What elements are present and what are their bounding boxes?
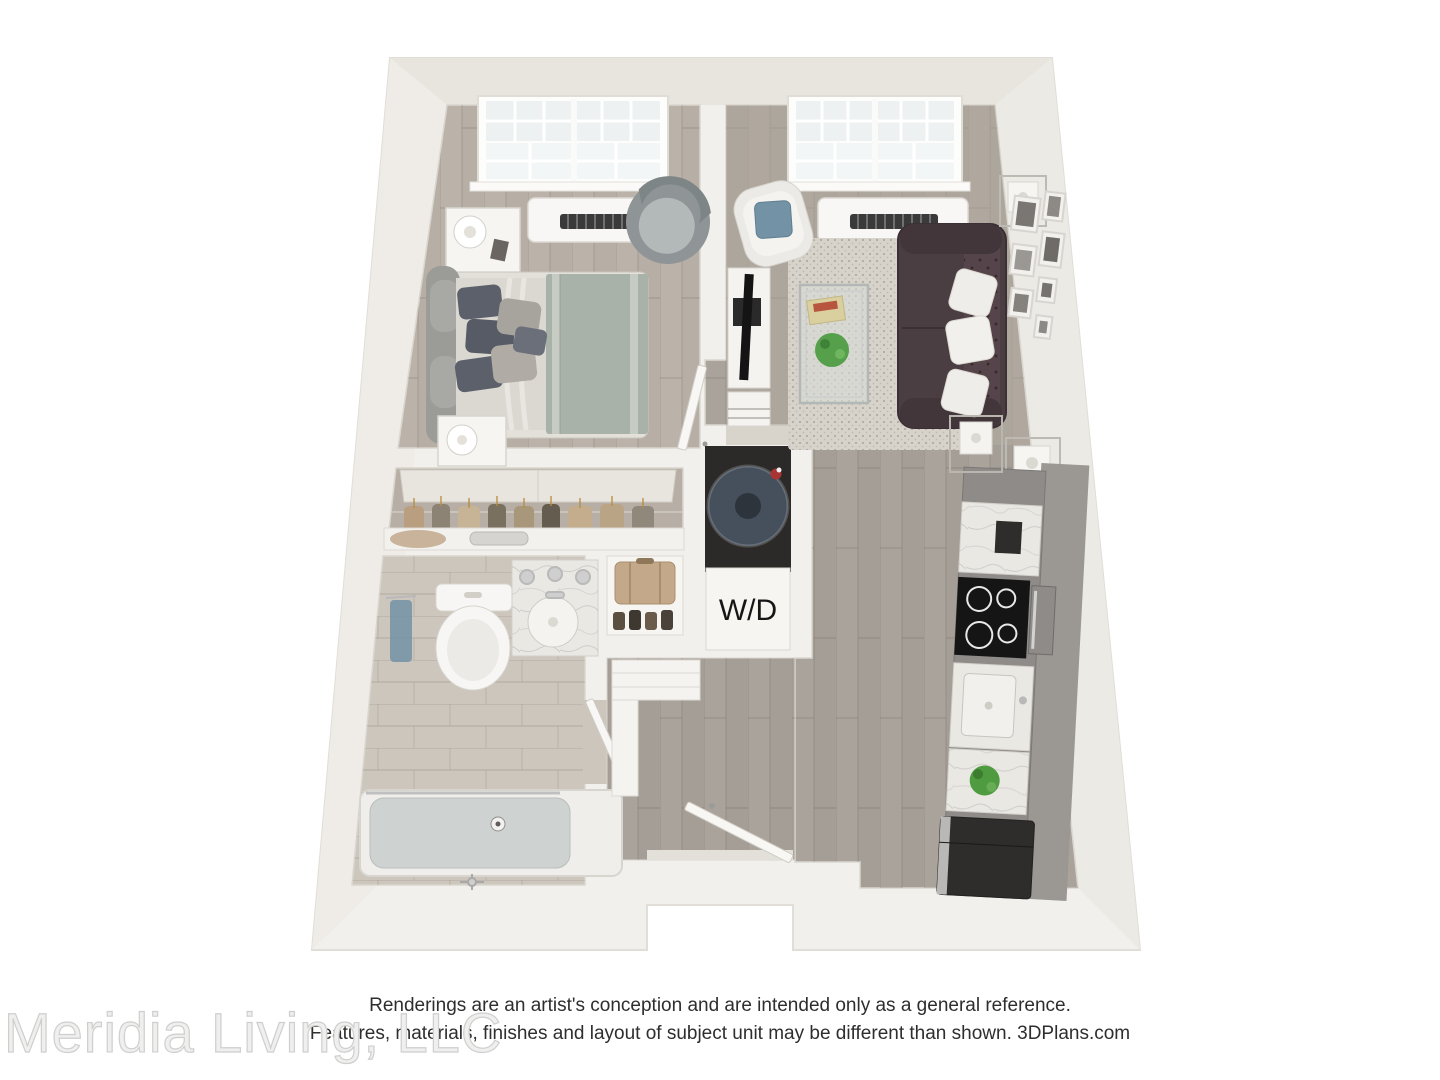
- rolled-towels: [470, 532, 528, 545]
- cooktop: [954, 577, 1056, 660]
- wd-label: W/D: [719, 594, 777, 627]
- plant: [815, 333, 849, 367]
- floor-plan-page: W/D: [0, 0, 1440, 1080]
- bathtub: [360, 790, 622, 890]
- kitchen-counter-coffee: [959, 502, 1043, 576]
- kitchen-sink: [949, 663, 1033, 751]
- vanity-sink: [512, 560, 598, 656]
- floor-plan-rendering: W/D: [0, 0, 1440, 1080]
- bedroom-window: [470, 96, 676, 191]
- laundry-closet: W/D: [705, 446, 791, 650]
- tv-console: [728, 268, 770, 426]
- kitchen-counter-plant: [946, 749, 1029, 815]
- blue-pillow: [754, 200, 792, 238]
- towel: [386, 596, 416, 662]
- magazines: [807, 296, 846, 325]
- door-handle: [709, 803, 715, 809]
- coffee-table: [800, 285, 868, 403]
- nightstand-bottom: [438, 416, 506, 466]
- sofa: [898, 224, 1006, 428]
- bed-blanket: [546, 274, 648, 434]
- suitcase: [615, 562, 675, 604]
- toilet: [436, 584, 512, 690]
- refrigerator: [937, 816, 1035, 899]
- basket: [390, 530, 446, 548]
- living-window: [780, 96, 970, 191]
- nightstand-top: [446, 208, 520, 278]
- watermark: Meridia Living, LLC: [4, 1000, 502, 1065]
- coffee-maker: [995, 521, 1023, 554]
